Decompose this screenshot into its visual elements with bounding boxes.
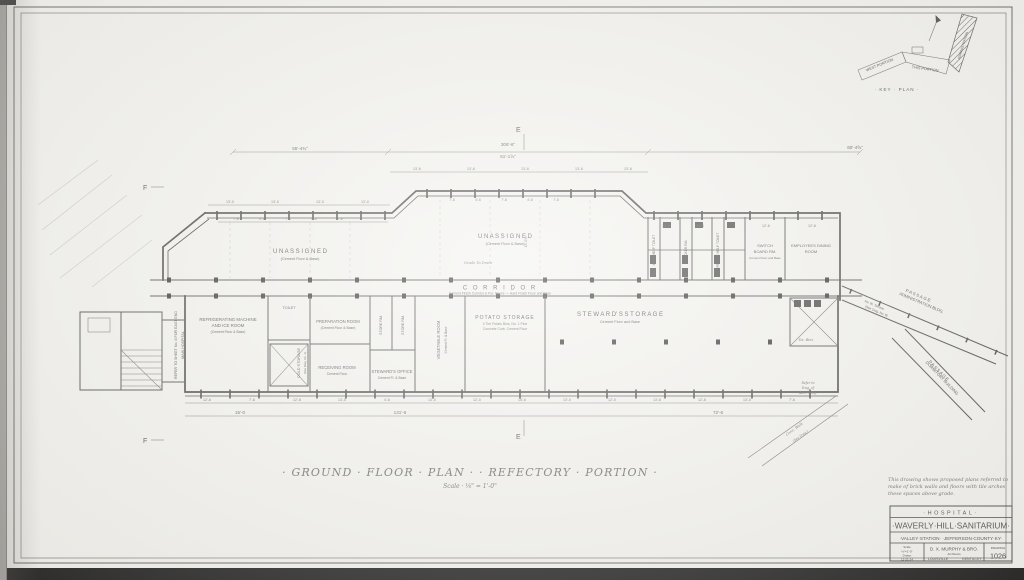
west-portion-ghost-lines bbox=[38, 160, 152, 287]
label-note: 4 Tier Potato Bins, No. 1 Pine bbox=[483, 322, 528, 326]
label-corridor-note: Cement Finish Corridor & Por. Floors — H… bbox=[449, 292, 551, 296]
marker-f-top: F bbox=[143, 185, 147, 192]
label-store-room: STORE RM. bbox=[401, 315, 405, 335]
floor-plan-drawing: WEST PORTION THIS PORTION ADMINISTRATION… bbox=[0, 0, 1024, 580]
label-note: Cement Floor and Base bbox=[749, 256, 781, 260]
dim-window: 4'-6 bbox=[527, 198, 533, 202]
dim-bottom: 13'-0 bbox=[563, 398, 571, 402]
label-locker: LOCKER RM. bbox=[684, 240, 688, 261]
title-block-name: ·WAVERLY·HILL·SANITARIUM· bbox=[892, 521, 1010, 531]
drawing-title: · GROUND · FLOOR · PLAN · · REFECTORY · … bbox=[282, 466, 658, 490]
label-refer-adm: Refer to bbox=[800, 381, 814, 385]
label-note: (Cement Floor & Base) bbox=[321, 326, 356, 330]
label-refrigerating: REFRIGERATING MACHINE bbox=[199, 317, 256, 322]
dim-bay: 13'-6 bbox=[467, 167, 475, 171]
room-labels: U N A S S I G N E D (Cement Floor & Base… bbox=[174, 233, 960, 444]
dim-bay: 13'-6 bbox=[624, 167, 632, 171]
dim-bay: 13'-0 bbox=[316, 200, 324, 204]
title-block-architect: D. X. MURPHY & BRO. bbox=[930, 547, 978, 552]
label-note: Concrete Curb, Cement Floor bbox=[483, 327, 528, 331]
dim-window: 4'-6 bbox=[475, 198, 481, 202]
dim-bottom: 7'-6 bbox=[249, 398, 255, 402]
dim-bottom: 15'-6 bbox=[518, 398, 526, 402]
handwritten-note: This drawing shows proposed plans referr… bbox=[888, 477, 1008, 497]
note-line: these spaces above grade. bbox=[888, 491, 955, 497]
label-note: Cement Fl. & Base bbox=[378, 376, 407, 380]
dim-bottom: 12'-6 bbox=[293, 398, 301, 402]
label-dining-room: ROOM bbox=[805, 249, 817, 254]
dim-bay: 13'-6 bbox=[521, 167, 529, 171]
dim-bay: 13'-0 bbox=[361, 200, 369, 204]
dim-bay: 12'-6 bbox=[662, 224, 670, 228]
label-note: (See Dwg. No. 4) bbox=[303, 352, 307, 374]
dim-window: 7'-8 bbox=[337, 217, 343, 221]
label-switchboard: SWITCH bbox=[757, 243, 773, 248]
title-block-meta: Scale bbox=[903, 545, 911, 549]
dim-bottom: 13'-0 bbox=[428, 398, 436, 402]
marker-e-bottom: E bbox=[516, 434, 521, 441]
title-block-hospital: ·HOSPITAL· bbox=[923, 511, 978, 517]
dim-window: 4'-6 bbox=[259, 217, 265, 221]
label-refer-adm: Dwg. of bbox=[801, 386, 815, 390]
title-block-meta: 12-21-24 bbox=[901, 558, 913, 562]
dim-bay: 13'-0 bbox=[271, 200, 279, 204]
title-block-sheet-label: DRAWING bbox=[991, 546, 1006, 550]
stair-block bbox=[80, 312, 185, 390]
dim-bottom: 12'-0 bbox=[608, 398, 616, 402]
dim-window: 7'-8 bbox=[449, 198, 455, 202]
dim-sub-total: 61'-1⅞" bbox=[500, 154, 516, 159]
dim-bottom: 4'-6 bbox=[384, 398, 390, 402]
title-block-location: ·VALLEY·STATION· ·JEFFERSON·COUNTY·KY· bbox=[899, 536, 1002, 541]
dim-bottom: 12'-0 bbox=[473, 398, 481, 402]
label-note: (Cement Floor & Base) bbox=[211, 330, 246, 334]
label-main-hospital: MAIN HOSPITAL bbox=[181, 331, 185, 359]
key-plan-caption: · KEY · PLAN · bbox=[875, 87, 920, 92]
key-plan-this-label: THIS PORTION bbox=[912, 65, 939, 73]
dim-window: 7'-8 bbox=[233, 217, 239, 221]
dim-window: 7'-8 bbox=[553, 198, 559, 202]
label-male-toilet: MALE HELP TOILET bbox=[652, 235, 656, 266]
dim-total-mid: 306'-6" bbox=[501, 142, 516, 147]
dim-window: 4'-6 bbox=[311, 217, 317, 221]
dim-bottom: 13'-6 bbox=[653, 398, 661, 402]
label-unassigned-center: U N A S S I G N E D bbox=[478, 234, 533, 240]
dim-bay: 13'-0 bbox=[226, 200, 234, 204]
label-bins: Da. Bins bbox=[798, 338, 814, 342]
label-refer-adm: Adm. Bldg. bbox=[798, 391, 817, 395]
label-dining-room: EMPLOYEES DINING bbox=[791, 243, 831, 248]
label-unassigned-west: U N A S S I G N E D bbox=[273, 249, 328, 255]
dim-window: 7'-8 bbox=[285, 217, 291, 221]
label-refer-sheet: REFER TO SHEET No. 8 FOR EAST END bbox=[174, 311, 178, 379]
label-toilet: TOILET bbox=[282, 306, 296, 310]
dim-bay: 12'-6 bbox=[808, 224, 816, 228]
label-steward-storage: S T E W A R D' S S T O R A G E bbox=[577, 312, 663, 318]
note-line: make of brick walls and floors with tile… bbox=[888, 484, 1006, 490]
dim-bay: 13'-6 bbox=[575, 167, 583, 171]
title-block: ·HOSPITAL· ·WAVERLY·HILL·SANITARIUM· ·VA… bbox=[890, 506, 1012, 562]
label-refrigerating: AND ICE ROOM bbox=[212, 323, 245, 328]
label-vegetable: VEGETABLE ROOM bbox=[436, 320, 441, 359]
dim-bottom: 12'-6 bbox=[203, 398, 211, 402]
label-store-room: STORE RM. bbox=[379, 315, 383, 335]
label-switchboard: BOARD RM. bbox=[754, 249, 777, 254]
title-block-architect-sub: Architects bbox=[947, 552, 961, 556]
label-steward-office: STEWARD'S OFFICE bbox=[372, 369, 413, 374]
label-note: Cement Floor bbox=[327, 372, 348, 376]
label-potato-storage: POTATO STORAGE bbox=[475, 315, 534, 321]
title-block-state: KENTUCKY bbox=[962, 557, 982, 561]
dim-bottom-total: 72'-6 bbox=[713, 410, 724, 415]
plan-title: · GROUND · FLOOR · PLAN · · REFECTORY · … bbox=[282, 466, 658, 479]
label-female-toilet: FEMALE HELP TOILET bbox=[716, 233, 720, 268]
dim-bottom-total: 15'-0 bbox=[235, 410, 246, 415]
north-arrow-icon bbox=[936, 15, 942, 23]
label-note: Cement Fl. & Base bbox=[444, 326, 448, 353]
dim-bottom-total: 131'-6 bbox=[394, 410, 407, 415]
dim-bay: 13'-6 bbox=[413, 167, 421, 171]
title-block-city: LOUISVILLE bbox=[928, 557, 949, 561]
note-line: This drawing shows proposed plans referr… bbox=[888, 477, 1008, 483]
label-note: (Cement Floor & Base) bbox=[281, 257, 321, 261]
blueprint-scan-page: WEST PORTION THIS PORTION ADMINISTRATION… bbox=[0, 0, 1024, 580]
key-plan: WEST PORTION THIS PORTION ADMINISTRATION… bbox=[858, 14, 977, 92]
dim-bottom: 13'-0 bbox=[338, 398, 346, 402]
label-passage-dorm: DORMITORY BUILDING bbox=[925, 360, 960, 396]
label-receiving: RECEIVING ROOM bbox=[318, 365, 356, 370]
dim-bottom: 12'-6 bbox=[698, 398, 706, 402]
marker-e-top: E bbox=[516, 127, 521, 134]
label-grade-note: Grade To Drain bbox=[464, 261, 493, 265]
marker-f-bottom: F bbox=[143, 438, 147, 445]
plan-scale: Scale · ⅛" = 1'-0" bbox=[443, 483, 497, 490]
label-preparation: PREPARATION ROOM bbox=[316, 319, 360, 324]
label-note: Cement Floor and Base bbox=[600, 320, 640, 324]
dim-bottom: 7'-6 bbox=[789, 398, 795, 402]
label-cold-storage: COLD STORAGE bbox=[297, 347, 301, 378]
dim-bottom: 13'-0 bbox=[743, 398, 751, 402]
title-block-sheet-number: 1026 bbox=[990, 552, 1006, 561]
dim-total-left: 55'-4¾" bbox=[292, 146, 308, 151]
dim-bay: 12'-6 bbox=[762, 224, 770, 228]
label-note: (Cement Floor & Base) bbox=[486, 242, 526, 246]
dim-bay: 12'-6 bbox=[696, 224, 704, 228]
dim-window: 7'-8 bbox=[501, 198, 507, 202]
dim-total-right: 60'-4⅝" bbox=[847, 145, 863, 150]
bins-room bbox=[790, 298, 838, 346]
